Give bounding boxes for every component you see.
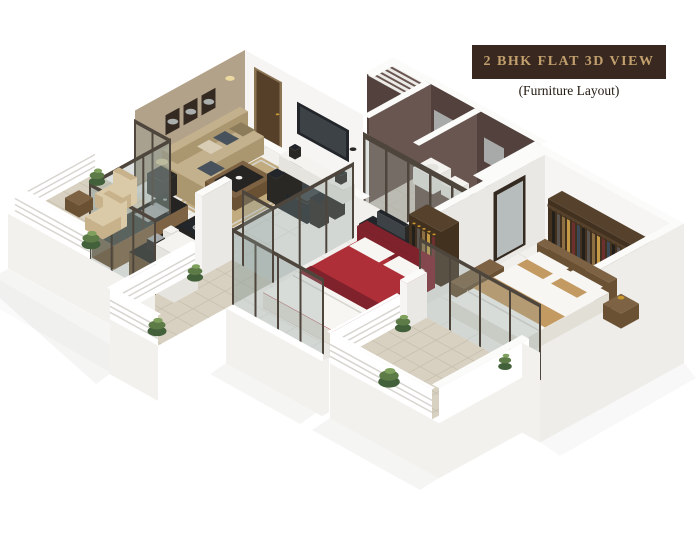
bath-front-post bbox=[363, 132, 366, 201]
bedroom2-wardrobe-clothes-item bbox=[552, 211, 555, 249]
balcony3-plant-3-base bbox=[498, 363, 512, 370]
picture-art-1 bbox=[203, 99, 214, 105]
passage-south-glass-mullion bbox=[242, 189, 244, 266]
bed1-wardrobe-clothes-hanger bbox=[412, 223, 415, 225]
banner-title: 2 BHK FLAT 3D VIEW bbox=[484, 54, 655, 70]
bedroom2-wardrobe-clothes-item bbox=[572, 222, 575, 260]
balcony3-plant-3-leaf bbox=[499, 357, 511, 363]
slab-bedroom1-side bbox=[322, 357, 329, 416]
floor-plan-3d-render bbox=[0, 0, 700, 539]
balcony2-plant-2-hi bbox=[153, 318, 162, 323]
bedroom2-wardrobe-clothes-item bbox=[577, 225, 580, 263]
kitchen-south-glass-mullion bbox=[132, 206, 134, 283]
coffee-decor bbox=[236, 176, 243, 180]
passage-balcony2-glass-mullion bbox=[299, 191, 301, 268]
bed1-wardrobe-clothes-hanger bbox=[417, 225, 420, 227]
wall-sconce-light bbox=[225, 76, 234, 81]
door-knob bbox=[276, 113, 280, 115]
balcony2-wall-stub-side bbox=[202, 180, 232, 277]
page: 2 BHK FLAT 3D VIEW (Furniture Layout) bbox=[0, 0, 700, 539]
balcony2-wall-stub-front bbox=[195, 193, 202, 277]
slab-east-bridge bbox=[522, 343, 540, 443]
bed2-lamp bbox=[618, 296, 625, 300]
passage-south-glass-mullion bbox=[272, 206, 274, 283]
bedroom1-south-glass-mullion bbox=[232, 228, 234, 305]
bedroom2-wardrobe-clothes-item bbox=[562, 216, 565, 254]
bedroom1-south-glass-mullion bbox=[300, 265, 302, 342]
passage-balcony2-glass-mullion bbox=[325, 177, 327, 254]
picture-art-3 bbox=[167, 119, 178, 125]
balcony1-plant-2-hi bbox=[87, 231, 96, 236]
floor-lamp-head bbox=[350, 147, 357, 151]
wicker-chair-1-back-side bbox=[131, 177, 137, 206]
bedroom2-wardrobe-clothes-item bbox=[587, 230, 590, 268]
bedroom2-wardrobe-clothes-item bbox=[582, 227, 585, 265]
bedroom1-south-glass-mullion bbox=[322, 277, 324, 354]
bedroom2-south-glass-mullion bbox=[449, 254, 451, 331]
picture-art-2 bbox=[185, 109, 196, 115]
balcony3-plant-2-hi bbox=[385, 368, 396, 374]
entry-door-frame bbox=[280, 81, 283, 155]
bedroom2-wardrobe-clothes-item bbox=[557, 214, 560, 252]
passage-balcony2-glass-mullion bbox=[352, 162, 354, 239]
bedroom2-wardrobe-clothes-item bbox=[567, 219, 570, 257]
bed1-wardrobe-clothes-hanger bbox=[427, 231, 430, 233]
bath-front-post bbox=[385, 144, 388, 213]
balcony1-plant-1-hi bbox=[94, 169, 102, 173]
balcony2-plant-1-hi bbox=[192, 264, 200, 268]
title-banner: 2 BHK FLAT 3D VIEW bbox=[472, 45, 666, 79]
wicker-chair-2-back-side bbox=[121, 200, 127, 229]
banner-subtitle: (Furniture Layout) bbox=[472, 83, 666, 99]
kitchen-balcony1-glass-mullion bbox=[169, 138, 171, 215]
bed1-tv-screen-side bbox=[405, 225, 409, 240]
bedroom2-south-glass-mullion bbox=[479, 270, 481, 347]
bed1-wardrobe-clothes-hanger bbox=[432, 234, 435, 236]
bed1-wardrobe-clothes-hanger bbox=[422, 228, 425, 230]
bedroom1-south-glass-mullion bbox=[277, 253, 279, 330]
dining-chair-2-front bbox=[267, 174, 276, 205]
balcony3-plant-3-hi bbox=[503, 354, 510, 358]
balcony3-plant-1-hi bbox=[400, 315, 408, 319]
